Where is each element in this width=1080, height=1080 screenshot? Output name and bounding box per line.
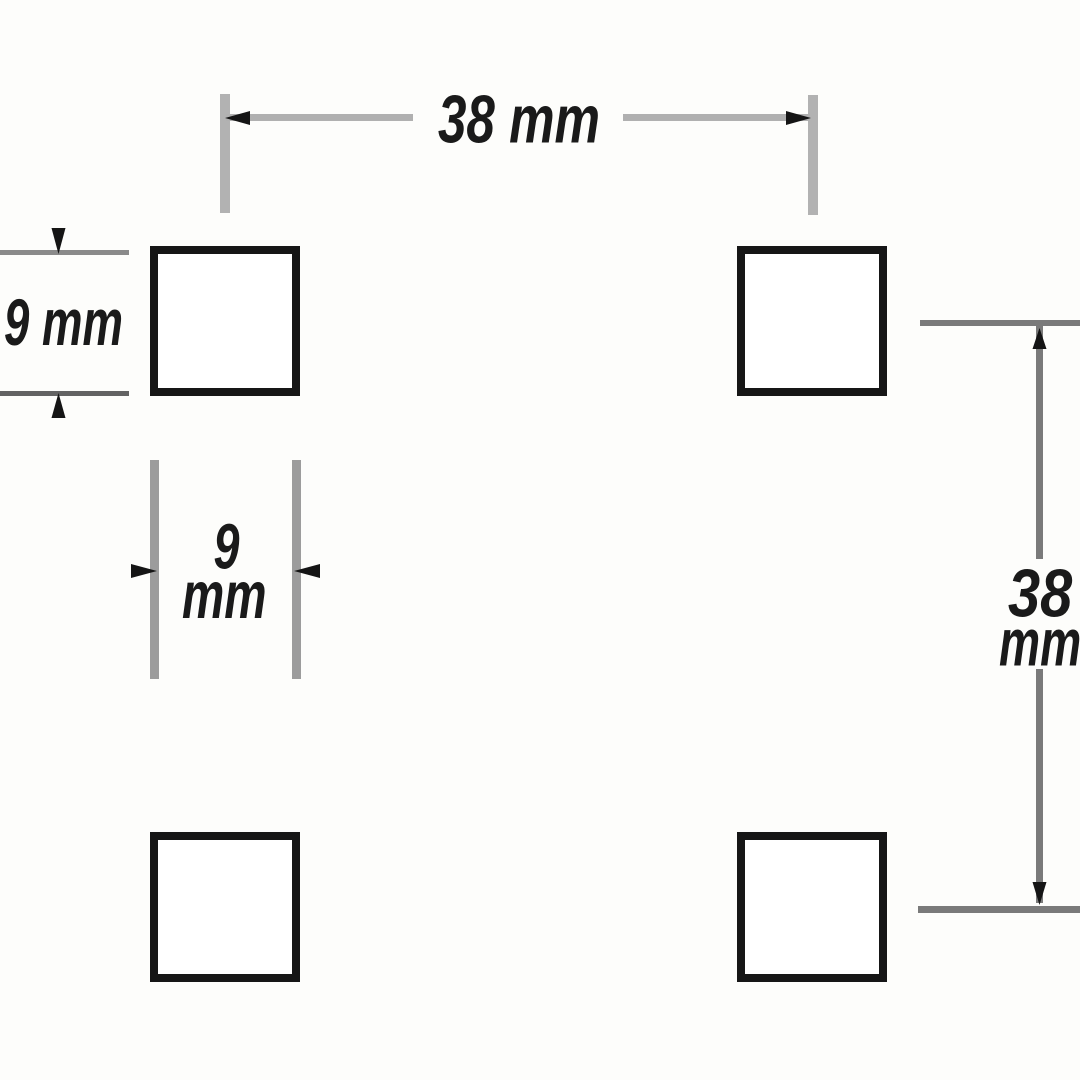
svg-text:mm: mm bbox=[182, 558, 267, 633]
svg-text:mm: mm bbox=[999, 606, 1080, 680]
svg-text:9 mm: 9 mm bbox=[4, 287, 123, 360]
svg-text:38 mm: 38 mm bbox=[438, 81, 600, 157]
